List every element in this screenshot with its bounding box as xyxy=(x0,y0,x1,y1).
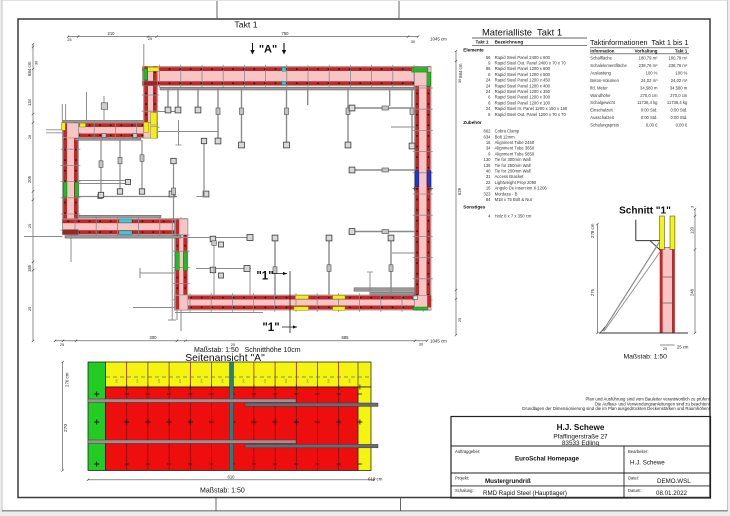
svg-text:Schalelementfläche: Schalelementfläche xyxy=(590,63,627,68)
svg-text:22: 22 xyxy=(486,180,491,185)
svg-text:Schalgewicht: Schalgewicht xyxy=(590,100,616,105)
svg-text:Rapid Steel Panel 2400 x 600: Rapid Steel Panel 2400 x 600 xyxy=(495,55,551,60)
svg-text:240: 240 xyxy=(327,378,331,383)
svg-text:240: 240 xyxy=(115,427,119,432)
svg-text:Sonstiges: Sonstiges xyxy=(463,204,485,209)
svg-text:750: 750 xyxy=(282,31,290,36)
svg-text:240: 240 xyxy=(199,378,203,383)
svg-text:684 cm: 684 cm xyxy=(27,61,32,76)
svg-text:240: 240 xyxy=(327,427,331,432)
svg-text:24,02 m³: 24,02 m³ xyxy=(641,78,658,83)
svg-text:08.01.2022: 08.01.2022 xyxy=(656,490,688,497)
svg-text:120: 120 xyxy=(690,226,695,234)
svg-text:Alignment Tube 5850: Alignment Tube 5850 xyxy=(495,151,535,156)
svg-text:31: 31 xyxy=(486,174,491,179)
svg-text:11736,4 kg: 11736,4 kg xyxy=(667,100,688,105)
svg-text:Elemente: Elemente xyxy=(463,47,484,52)
svg-text:684 cm: 684 cm xyxy=(458,63,463,78)
svg-text:610: 610 xyxy=(228,474,236,479)
svg-text:240: 240 xyxy=(115,378,119,383)
svg-text:240: 240 xyxy=(157,378,161,383)
svg-text:130: 130 xyxy=(484,157,492,162)
svg-text:Takt 1: Takt 1 xyxy=(234,20,257,30)
svg-text:1045 cm: 1045 cm xyxy=(430,36,447,41)
svg-text:240: 240 xyxy=(305,427,309,432)
svg-text:136: 136 xyxy=(484,163,492,168)
svg-text:Mordaza - B: Mordaza - B xyxy=(495,191,518,196)
svg-text:Schnitt "1": Schnitt "1" xyxy=(619,206,671,217)
svg-text:Maßstab: 1:50: Maßstab: 1:50 xyxy=(200,488,245,495)
svg-text:0,00 €: 0,00 € xyxy=(646,123,658,128)
svg-text:Auftraggeber:: Auftraggeber: xyxy=(455,449,480,454)
svg-text:240: 240 xyxy=(221,378,225,383)
svg-text:180,79 m²: 180,79 m² xyxy=(639,56,658,61)
svg-text:Takt 1: Takt 1 xyxy=(476,39,489,44)
svg-text:Schalung:: Schalung: xyxy=(455,488,474,493)
svg-text:56: 56 xyxy=(486,55,491,60)
svg-text:34,580 m: 34,580 m xyxy=(670,85,688,90)
svg-text:240: 240 xyxy=(136,378,140,383)
svg-text:Projekt:: Projekt: xyxy=(455,476,469,481)
svg-text:240: 240 xyxy=(157,427,161,432)
svg-text:H.J. Schewe: H.J. Schewe xyxy=(557,423,605,432)
svg-text:1045 cm: 1045 cm xyxy=(430,338,447,343)
svg-text:Materialliste Takt 1: Materialliste Takt 1 xyxy=(482,26,562,37)
svg-text:34: 34 xyxy=(486,146,491,151)
svg-text:Vorhaltung: Vorhaltung xyxy=(635,48,658,53)
svg-text:Rapid Steel Out. Panel 2400 x: Rapid Steel Out. Panel 2400 x 70 x 70 xyxy=(495,61,567,66)
svg-text:Rapid Steel Panel 1200 x 100: Rapid Steel Panel 1200 x 100 xyxy=(495,100,551,105)
svg-text:240: 240 xyxy=(178,427,182,432)
svg-text:610 cm: 610 cm xyxy=(368,476,383,481)
svg-text:134: 134 xyxy=(27,98,32,106)
svg-text:240: 240 xyxy=(221,427,225,432)
svg-text:25 cm: 25 cm xyxy=(677,345,689,350)
svg-text:Schalfläche: Schalfläche xyxy=(590,56,612,61)
svg-text:86: 86 xyxy=(486,66,491,71)
svg-text:240: 240 xyxy=(348,378,352,383)
svg-text:24: 24 xyxy=(486,78,491,83)
svg-text:25: 25 xyxy=(60,343,64,347)
svg-text:25: 25 xyxy=(148,37,152,41)
svg-text:"1": "1" xyxy=(262,322,279,334)
svg-text:Rapid Steel Panel 1200 x 300: Rapid Steel Panel 1200 x 300 xyxy=(495,95,551,100)
svg-text:0:00 Std.: 0:00 Std. xyxy=(641,115,658,120)
svg-text:Beton-Volumen: Beton-Volumen xyxy=(590,78,619,83)
svg-text:Einschalzeit: Einschalzeit xyxy=(590,108,613,113)
svg-text:Takt 1: Takt 1 xyxy=(675,48,688,53)
svg-text:Tie for 250mm Wall: Tie for 250mm Wall xyxy=(495,163,531,168)
svg-text:EuroSchal Homepage: EuroSchal Homepage xyxy=(515,456,580,463)
svg-text:Bezeichnung: Bezeichnung xyxy=(495,39,524,44)
svg-text:24,02 m³: 24,02 m³ xyxy=(671,78,688,83)
svg-text:685: 685 xyxy=(342,335,350,340)
svg-text:Rapid Steel Panel 1200 x 400: Rapid Steel Panel 1200 x 400 xyxy=(495,83,551,88)
svg-text:270 cm: 270 cm xyxy=(65,372,70,387)
svg-text:205: 205 xyxy=(27,175,32,183)
svg-text:Datum:: Datum: xyxy=(628,488,642,493)
svg-text:Rapid Steel Panel 1200 x 350: Rapid Steel Panel 1200 x 350 xyxy=(495,89,551,94)
svg-text:Information: Information xyxy=(590,48,614,53)
svg-text:30: 30 xyxy=(458,79,462,83)
svg-text:DEMO.WSL: DEMO.WSL xyxy=(657,478,691,485)
svg-text:Taktinformationen Takt 1 bis: Taktinformationen Takt 1 bis 1 xyxy=(590,38,688,47)
svg-text:Angulo De Insercion X 1206: Angulo De Insercion X 1206 xyxy=(495,186,548,191)
svg-text:Rapid Steel Panel 1200 x 500: Rapid Steel Panel 1200 x 500 xyxy=(495,72,551,77)
svg-text:0:00 Std.: 0:00 Std. xyxy=(641,108,658,113)
svg-text:25: 25 xyxy=(663,347,667,351)
svg-text:30: 30 xyxy=(35,61,39,65)
svg-text:Bolt 12mm: Bolt 12mm xyxy=(495,134,516,139)
svg-text:24: 24 xyxy=(486,83,491,88)
svg-text:Rapid Steel Out. Panel 1200 x: Rapid Steel Out. Panel 1200 x 70 x 70 xyxy=(495,112,567,117)
svg-text:M18 x 75 Bolt & Nut: M18 x 75 Bolt & Nut xyxy=(495,197,533,202)
svg-text:240: 240 xyxy=(242,427,246,432)
svg-text:323: 323 xyxy=(484,191,492,196)
svg-text:Rapid Steel Panel 1200 x 450: Rapid Steel Panel 1200 x 450 xyxy=(495,78,551,83)
svg-text:Tie for 300mm Wall: Tie for 300mm Wall xyxy=(495,157,531,162)
svg-text:276: 276 xyxy=(590,288,595,296)
svg-text:84: 84 xyxy=(486,197,491,202)
svg-text:Cobra Clamp: Cobra Clamp xyxy=(495,129,520,134)
svg-text:26: 26 xyxy=(28,135,32,139)
svg-text:Zubehör: Zubehör xyxy=(463,120,482,125)
svg-text:Maßstab: 1:50: Maßstab: 1:50 xyxy=(624,353,668,360)
svg-text:Mustergrundriß: Mustergrundriß xyxy=(485,478,531,485)
svg-text:238,76 m²: 238,76 m² xyxy=(639,63,658,68)
svg-text:83533 Edling: 83533 Edling xyxy=(562,440,600,447)
svg-text:RMD Rapid Steel (Hauptlager): RMD Rapid Steel (Hauptlager) xyxy=(483,490,567,497)
svg-text:H.J. Schewe: H.J. Schewe xyxy=(630,460,665,467)
svg-text:240: 240 xyxy=(305,378,309,383)
svg-text:248: 248 xyxy=(690,288,695,296)
svg-text:25: 25 xyxy=(28,307,32,311)
svg-text:238,76 m²: 238,76 m² xyxy=(668,63,687,68)
svg-text:"1": "1" xyxy=(256,271,273,283)
svg-text:240: 240 xyxy=(178,378,182,383)
svg-text:34,580 m: 34,580 m xyxy=(640,85,658,90)
svg-text:Tie for 200mm Wall: Tie for 200mm Wall xyxy=(495,169,531,174)
svg-text:Auslastung: Auslastung xyxy=(590,70,611,75)
svg-text:270: 270 xyxy=(63,424,69,432)
svg-text:0,00 €: 0,00 € xyxy=(676,123,688,128)
svg-text:Alignment Tube 2450: Alignment Tube 2450 xyxy=(495,140,535,145)
svg-text:Alignment Tube 3650: Alignment Tube 3650 xyxy=(495,146,535,151)
svg-text:25: 25 xyxy=(458,318,462,322)
svg-text:Bearbeiter:: Bearbeiter: xyxy=(628,449,648,454)
svg-text:278 cm: 278 cm xyxy=(590,223,595,238)
svg-text:210: 210 xyxy=(108,31,116,36)
svg-text:3: 3 xyxy=(691,206,695,208)
svg-text:40: 40 xyxy=(486,169,491,174)
svg-text:16: 16 xyxy=(486,186,491,191)
svg-text:25: 25 xyxy=(28,224,32,228)
svg-text:0:00 Std.: 0:00 Std. xyxy=(671,115,688,120)
svg-text:lfd. Meter: lfd. Meter xyxy=(590,85,608,90)
svg-text:100 %: 100 % xyxy=(646,70,658,75)
svg-text:634: 634 xyxy=(484,134,492,139)
svg-text:Schalungspreis: Schalungspreis xyxy=(590,123,619,128)
svg-text:16: 16 xyxy=(486,140,491,145)
svg-text:240: 240 xyxy=(284,378,288,383)
svg-text:100 %: 100 % xyxy=(675,70,687,75)
svg-text:662: 662 xyxy=(484,129,492,134)
svg-text:0:00 Std.: 0:00 Std. xyxy=(671,108,688,113)
svg-text:185: 185 xyxy=(27,264,32,272)
svg-text:Grundlagen der Dimensionierung: Grundlagen der Dimensionierung sind die … xyxy=(522,406,710,411)
svg-text:24: 24 xyxy=(486,89,491,94)
svg-text:Rapid Steel Panel 1200 x 600: Rapid Steel Panel 1200 x 600 xyxy=(495,66,551,71)
svg-text:240: 240 xyxy=(136,427,140,432)
svg-text:240: 240 xyxy=(242,378,246,383)
svg-text:629: 629 xyxy=(457,187,462,195)
svg-text:240: 240 xyxy=(348,427,352,432)
svg-text:Datei:: Datei: xyxy=(628,476,639,481)
svg-text:240: 240 xyxy=(199,427,203,432)
svg-text:Holz 8 x 7 x 350 cm: Holz 8 x 7 x 350 cm xyxy=(495,213,532,218)
svg-text:240: 240 xyxy=(263,378,267,383)
svg-text:240: 240 xyxy=(263,427,267,432)
svg-text:"A": "A" xyxy=(259,44,277,56)
svg-text:Wandhöhe: Wandhöhe xyxy=(590,93,611,98)
svg-text:Ausschalzeit: Ausschalzeit xyxy=(590,115,614,120)
svg-text:11736,4 kg: 11736,4 kg xyxy=(637,100,658,105)
svg-text:25: 25 xyxy=(67,38,71,42)
svg-text:Access Bracket: Access Bracket xyxy=(495,174,525,179)
svg-text:270,0 cm: 270,0 cm xyxy=(640,93,658,98)
svg-text:30: 30 xyxy=(411,40,415,44)
svg-text:Rapid Steel In. Panel 1200 x 1: Rapid Steel In. Panel 1200 x 150 x 150 xyxy=(495,106,568,111)
svg-text:240: 240 xyxy=(284,427,288,432)
svg-text:300: 300 xyxy=(150,335,158,340)
svg-text:30: 30 xyxy=(419,343,423,347)
svg-text:24: 24 xyxy=(486,106,491,111)
svg-text:Lightweight Prop 2090: Lightweight Prop 2090 xyxy=(495,180,537,185)
svg-text:270,0 cm: 270,0 cm xyxy=(670,93,688,98)
svg-text:180,79 m²: 180,79 m² xyxy=(668,56,687,61)
